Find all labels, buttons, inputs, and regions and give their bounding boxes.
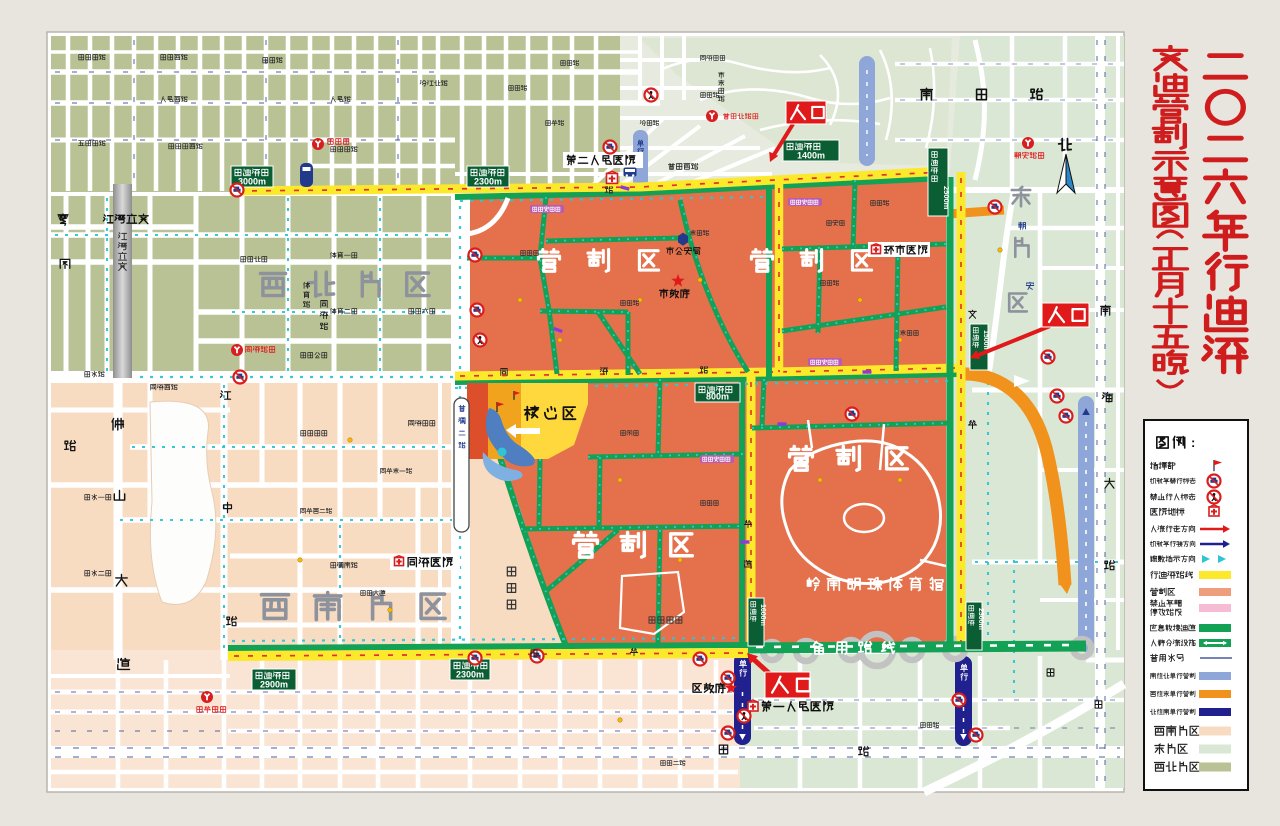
svg-text:1400m: 1400m bbox=[797, 151, 825, 161]
svg-text:2500m: 2500m bbox=[942, 186, 951, 210]
svg-text:2900m: 2900m bbox=[260, 680, 288, 690]
svg-text:2300m: 2300m bbox=[456, 670, 484, 680]
svg-text:2300m: 2300m bbox=[977, 608, 984, 630]
svg-text:1600m: 1600m bbox=[759, 604, 766, 626]
svg-text:1500m: 1500m bbox=[982, 330, 989, 352]
svg-text::: : bbox=[1191, 435, 1195, 450]
svg-text:2300m: 2300m bbox=[474, 177, 502, 187]
svg-text:800m: 800m bbox=[706, 392, 729, 402]
